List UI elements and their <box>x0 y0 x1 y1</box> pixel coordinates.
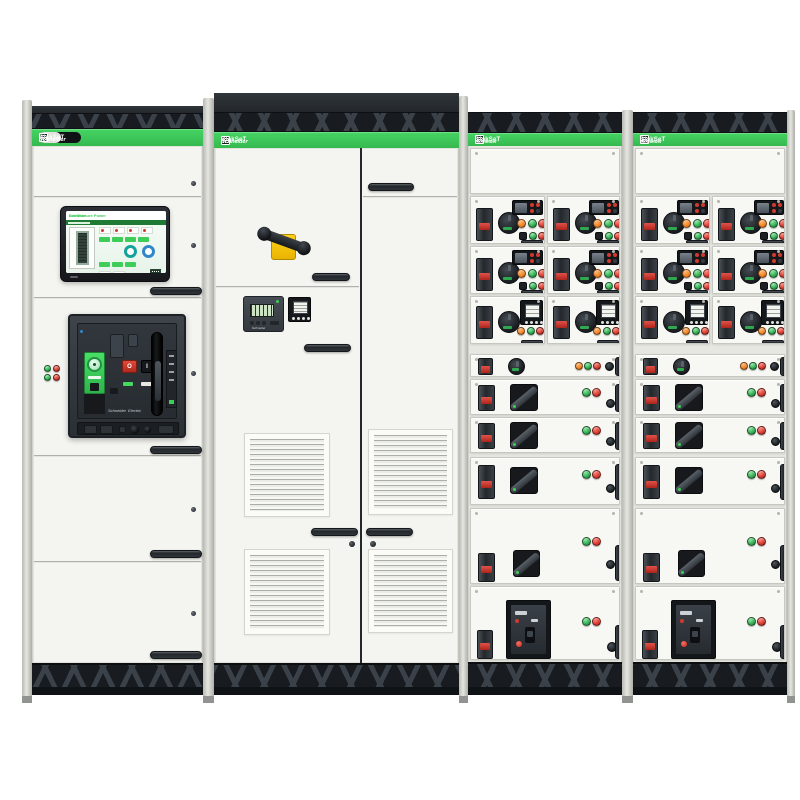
test-knob[interactable] <box>606 560 615 569</box>
pilot-light-green[interactable] <box>44 374 51 381</box>
reset-button[interactable] <box>682 219 691 228</box>
pilot-light-red[interactable] <box>538 232 545 240</box>
breaker-rotary-handle[interactable] <box>510 422 538 449</box>
air-circuit-breaker: O I SchneiderElectric <box>68 314 186 438</box>
drawer-grip[interactable] <box>597 290 619 294</box>
drawer-side-handle[interactable] <box>780 384 785 412</box>
motor-control-unit[interactable] <box>754 200 784 215</box>
test-knob[interactable] <box>605 362 614 371</box>
feeder-drawer <box>635 417 785 453</box>
start-button[interactable] <box>692 327 700 335</box>
hmi-button[interactable] <box>112 237 123 242</box>
pilot-light-green[interactable] <box>747 617 756 626</box>
hmi-button[interactable] <box>99 237 110 242</box>
ventilation-grille <box>244 549 330 635</box>
frame-post-right <box>787 110 795 703</box>
feeder-drawer <box>470 379 620 415</box>
meter-drawer <box>635 296 710 344</box>
mini-selector[interactable] <box>519 282 527 290</box>
hmi-button[interactable] <box>125 262 136 267</box>
stop-button[interactable] <box>538 269 545 278</box>
door-split <box>360 148 362 663</box>
hmi-button[interactable] <box>125 237 136 242</box>
door-handle[interactable] <box>150 287 202 295</box>
feeder-drawer <box>635 379 785 415</box>
pilot-light-red[interactable] <box>757 617 766 626</box>
pilot-light-green[interactable] <box>582 426 591 435</box>
ventilation-grille <box>244 433 330 517</box>
motor-drawer <box>712 246 785 294</box>
pilot-light-red[interactable] <box>757 537 766 546</box>
drawer-latch-handle[interactable] <box>641 208 658 241</box>
test-knob[interactable] <box>606 399 615 408</box>
pilot-light-green[interactable] <box>694 282 702 290</box>
indicator-window <box>110 334 124 358</box>
stop-button[interactable] <box>538 219 545 228</box>
feeder-drawer <box>470 417 620 453</box>
door-handle[interactable] <box>150 651 202 659</box>
hmi-brand-logo: Schneider <box>69 214 86 218</box>
reset-button[interactable] <box>517 269 526 278</box>
start-button[interactable] <box>768 327 776 335</box>
drawer-latch-handle[interactable] <box>478 385 495 411</box>
reset-button[interactable] <box>758 219 767 228</box>
door-handle[interactable] <box>366 528 413 536</box>
breaker-rotary-handle[interactable] <box>678 550 705 577</box>
mini-selector[interactable] <box>519 232 527 240</box>
drawer-latch-handle[interactable] <box>553 258 570 291</box>
feeder-drawer <box>470 457 620 505</box>
motor-drawer <box>547 196 620 244</box>
pilot-light-red[interactable] <box>53 374 60 381</box>
cabinet3-top-vent <box>633 112 787 133</box>
drawer-latch-handle[interactable] <box>643 553 660 582</box>
drawer-latch-handle[interactable] <box>476 306 493 339</box>
pilot-light-green[interactable] <box>770 232 778 240</box>
mini-selector[interactable] <box>595 282 603 290</box>
reset-button[interactable] <box>740 362 748 370</box>
drawer-latch-handle[interactable] <box>553 208 570 241</box>
mini-selector[interactable] <box>684 282 692 290</box>
pilot-light-green[interactable] <box>747 388 756 397</box>
motor-control-unit[interactable] <box>512 250 543 265</box>
multimeter[interactable] <box>288 297 311 322</box>
drawer-grip[interactable] <box>762 340 784 344</box>
drawer-grip[interactable] <box>521 290 543 294</box>
breaker-rotary-handle[interactable] <box>510 384 538 411</box>
hmi-button[interactable] <box>112 262 123 267</box>
drawer-side-handle[interactable] <box>780 625 785 659</box>
meter-enter-button[interactable] <box>270 321 279 325</box>
test-knob[interactable] <box>771 560 780 569</box>
cabinet3-base <box>633 662 787 695</box>
stop-button[interactable] <box>614 219 620 228</box>
trip-test-button[interactable] <box>681 641 687 647</box>
frame-post-1-2 <box>203 98 214 703</box>
alarm-tile[interactable] <box>113 227 125 234</box>
start-button[interactable] <box>604 219 613 228</box>
stop-button[interactable] <box>612 327 620 335</box>
pilot-light-green[interactable] <box>44 365 51 372</box>
drawer-latch-handle[interactable] <box>718 258 735 291</box>
drawer-latch-handle[interactable] <box>643 423 660 449</box>
hmi-button[interactable] <box>99 262 110 267</box>
meter-button[interactable] <box>256 321 260 325</box>
pilot-light-red[interactable] <box>779 282 785 290</box>
motor-control-unit[interactable] <box>754 250 784 265</box>
cabinet2-roof <box>214 93 459 113</box>
reset-button[interactable] <box>682 269 691 278</box>
drawer-side-handle[interactable] <box>615 422 620 450</box>
feeder-drawer <box>635 354 785 377</box>
trip-test-button[interactable] <box>516 641 522 647</box>
alarm-tile[interactable] <box>141 227 153 234</box>
frame-post-3-4 <box>622 110 633 703</box>
door-handle[interactable] <box>304 344 351 352</box>
molded-case-breaker[interactable] <box>671 600 716 659</box>
door-handle[interactable] <box>311 528 358 536</box>
door-lock[interactable] <box>191 371 196 376</box>
breaker-toggle[interactable] <box>690 627 700 643</box>
drawer-grip[interactable] <box>597 240 619 244</box>
breaker-toggle[interactable] <box>525 627 535 643</box>
trip-unit-dial[interactable] <box>87 357 102 372</box>
stop-button[interactable] <box>701 327 709 335</box>
drawer-side-handle[interactable] <box>780 357 785 376</box>
pilot-light-red[interactable] <box>592 388 601 397</box>
pilot-light-green[interactable] <box>747 426 756 435</box>
pilot-light-green[interactable] <box>529 282 537 290</box>
pilot-light-red[interactable] <box>53 365 60 372</box>
cabinet3-brand-band: BlokSeT Schneider Electric <box>468 133 622 146</box>
meter-button[interactable] <box>262 321 266 325</box>
hmi-button[interactable] <box>138 237 149 242</box>
start-button[interactable] <box>528 269 537 278</box>
drawer-grip[interactable] <box>686 290 708 294</box>
alarm-tile[interactable] <box>127 227 139 234</box>
rating-plate <box>166 350 177 408</box>
drawer-grip[interactable] <box>762 290 784 294</box>
pilot-light-red[interactable] <box>592 426 601 435</box>
pilot-light-green[interactable] <box>694 232 702 240</box>
drawer-side-handle[interactable] <box>615 384 620 412</box>
door-handle[interactable] <box>150 446 202 454</box>
blank-panel <box>635 148 785 194</box>
start-button[interactable] <box>527 327 535 335</box>
pilot-light-green[interactable] <box>582 388 591 397</box>
drawer-side-handle[interactable] <box>615 545 620 581</box>
cabinet3-top-vent <box>468 112 622 133</box>
door-lock[interactable] <box>191 507 196 512</box>
drawer-latch-handle[interactable] <box>643 385 660 411</box>
meter-brand: Schneider <box>252 326 266 330</box>
reset-button[interactable] <box>593 219 602 228</box>
power-meter[interactable]: Schneider <box>243 296 284 332</box>
cabinet1-top-vent <box>32 113 203 129</box>
racking-panel <box>77 422 179 435</box>
test-knob[interactable] <box>606 437 615 446</box>
start-button[interactable] <box>604 269 613 278</box>
motor-drawer <box>712 196 785 244</box>
drawer-latch-handle[interactable] <box>643 358 658 375</box>
hmi-screen[interactable]: EcoStruxure Power Schneider <box>66 211 166 273</box>
racking-socket[interactable] <box>130 425 139 434</box>
pilot-light-red[interactable] <box>757 388 766 397</box>
single-line-diagram <box>69 227 95 269</box>
pilot-light-red[interactable] <box>538 282 545 290</box>
gauge-blue <box>142 245 155 258</box>
pilot-light-green[interactable] <box>529 232 537 240</box>
drawer-latch-handle[interactable] <box>476 208 493 241</box>
pilot-light-red[interactable] <box>703 232 710 240</box>
feeder-drawer-large <box>635 508 785 584</box>
breaker-rotary-handle[interactable] <box>675 384 703 411</box>
drawer-grip[interactable] <box>521 240 543 244</box>
pilot-light-red[interactable] <box>757 426 766 435</box>
drawer-grip[interactable] <box>521 340 543 344</box>
start-button[interactable] <box>693 219 702 228</box>
drawer-side-handle[interactable] <box>615 464 620 500</box>
reset-button[interactable] <box>517 327 525 335</box>
test-knob[interactable] <box>771 484 780 493</box>
pilot-light-green[interactable] <box>582 537 591 546</box>
breaker-rotary-handle[interactable] <box>675 422 703 449</box>
hmi-header: EcoStruxure Power Schneider <box>66 211 166 220</box>
start-button[interactable] <box>528 219 537 228</box>
cabinet2-top-vent <box>214 112 459 132</box>
pilot-light-red[interactable] <box>592 470 601 479</box>
hmi-chin <box>66 273 166 280</box>
breaker-face: O I SchneiderElectric <box>77 323 177 419</box>
drawer-latch-handle[interactable] <box>478 465 495 499</box>
door-lock[interactable] <box>349 541 355 547</box>
test-knob[interactable] <box>770 362 779 371</box>
reset-button[interactable] <box>758 269 767 278</box>
drawer-latch-handle[interactable] <box>642 630 658 659</box>
start-button[interactable] <box>603 327 611 335</box>
drawer-latch-handle[interactable] <box>477 630 493 659</box>
rotary-switch[interactable] <box>673 358 690 375</box>
pilot-light-green[interactable] <box>605 232 613 240</box>
test-knob[interactable] <box>606 484 615 493</box>
meter-drawer <box>470 296 545 344</box>
motor-drawer <box>635 246 710 294</box>
drawer-side-handle[interactable] <box>780 545 785 581</box>
meter-lcd-display <box>250 304 274 317</box>
meter-drawer <box>547 296 620 344</box>
breaker-rotary-handle[interactable] <box>513 550 540 577</box>
feeder-drawer <box>470 354 620 377</box>
door-handle[interactable] <box>312 273 350 281</box>
reset-button[interactable] <box>758 327 766 335</box>
drawer-latch-handle[interactable] <box>553 306 570 339</box>
rotary-switch[interactable] <box>508 358 525 375</box>
push-off-button[interactable]: O <box>122 360 137 373</box>
pilot-light-red[interactable] <box>703 282 710 290</box>
blank-panel <box>470 148 620 194</box>
pilot-light-green[interactable] <box>749 362 757 370</box>
cabinet3-brand-band: BlokSeT Schneider Electric <box>633 133 787 146</box>
frame-post-2-3 <box>459 96 468 703</box>
drawer-side-handle[interactable] <box>780 422 785 450</box>
breaker-rotary-handle[interactable] <box>510 467 538 494</box>
start-button[interactable] <box>769 269 778 278</box>
drawer-grip[interactable] <box>762 240 784 244</box>
reset-button[interactable] <box>682 327 690 335</box>
cabinet-1: BlokSeT Schneider Electric EcoStruxure P… <box>32 106 203 696</box>
breaker-rotary-handle[interactable] <box>675 467 703 494</box>
cabinet2-brand-band: BlokSeT Schneider Electric <box>214 132 459 148</box>
stop-button[interactable] <box>614 269 620 278</box>
drawer-side-handle[interactable] <box>615 625 620 659</box>
reset-button[interactable] <box>593 327 601 335</box>
drawer-grip[interactable] <box>686 340 708 344</box>
mini-selector[interactable] <box>684 232 692 240</box>
mini-selector[interactable] <box>595 232 603 240</box>
drawer-meter[interactable] <box>520 300 543 325</box>
pilot-light-red[interactable] <box>758 362 766 370</box>
motor-drawer <box>470 196 545 244</box>
molded-case-breaker[interactable] <box>506 600 551 659</box>
pilot-light-red[interactable] <box>757 470 766 479</box>
motor-control-unit[interactable] <box>677 250 708 265</box>
switchboard: BlokSeT Schneider Electric EcoStruxure P… <box>0 0 800 800</box>
pilot-light-red[interactable] <box>592 617 601 626</box>
stop-button[interactable] <box>703 219 710 228</box>
micrologic-control-unit[interactable] <box>84 352 105 394</box>
motor-drawer <box>547 246 620 294</box>
drawer-latch-handle[interactable] <box>718 208 735 241</box>
start-button[interactable] <box>769 219 778 228</box>
door-handle[interactable] <box>150 550 202 558</box>
drawer-meter[interactable] <box>761 300 784 325</box>
stop-button[interactable] <box>703 269 710 278</box>
stop-button[interactable] <box>779 269 785 278</box>
pilot-light-green[interactable] <box>582 617 591 626</box>
drawer-side-handle[interactable] <box>615 357 620 376</box>
drawer-latch-handle[interactable] <box>641 306 658 339</box>
drawer-latch-handle[interactable] <box>478 553 495 582</box>
drawer-latch-handle[interactable] <box>478 423 495 449</box>
pilot-light-red[interactable] <box>614 282 620 290</box>
motor-control-unit[interactable] <box>512 200 543 215</box>
drawer-latch-handle[interactable] <box>478 358 493 375</box>
door-lock[interactable] <box>191 611 196 616</box>
hmi-content <box>66 225 166 273</box>
motor-control-unit[interactable] <box>589 250 619 265</box>
alarm-tile[interactable] <box>99 227 111 234</box>
motor-control-unit[interactable] <box>589 200 619 215</box>
frame-post-left <box>22 100 32 703</box>
drawer-latch-handle[interactable] <box>718 306 735 339</box>
ventilation-grille <box>368 549 453 633</box>
cabinet1-brand-band: BlokSeT Schneider Electric <box>32 129 203 146</box>
drawer-meter[interactable] <box>685 300 708 325</box>
cabinet-4: BlokSeT Schneider Electric <box>633 112 787 695</box>
ventilation-grille <box>368 429 453 515</box>
start-button[interactable] <box>693 269 702 278</box>
door-lock[interactable] <box>191 243 196 248</box>
indicator-window <box>128 334 138 347</box>
mini-selector[interactable] <box>760 232 768 240</box>
drawer-latch-handle[interactable] <box>643 465 660 499</box>
gauge-teal <box>124 245 137 258</box>
reset-button[interactable] <box>517 219 526 228</box>
meter-status-led <box>276 300 279 303</box>
reset-button[interactable] <box>593 269 602 278</box>
feeder-drawer-large <box>470 508 620 584</box>
charging-handle-slot[interactable] <box>151 332 163 416</box>
cabinet2-base <box>214 663 459 695</box>
pilot-light-green[interactable] <box>582 470 591 479</box>
drawer-grip[interactable] <box>597 340 619 344</box>
door-lock[interactable] <box>370 541 376 547</box>
cabinet-3: BlokSeT Schneider Electric <box>468 112 622 695</box>
cabinet1-base <box>32 663 203 695</box>
stop-button[interactable] <box>777 327 785 335</box>
meter-button[interactable] <box>250 321 254 325</box>
drawer-side-handle[interactable] <box>780 464 785 500</box>
stop-button[interactable] <box>536 327 544 335</box>
drawer-meter[interactable] <box>596 300 619 325</box>
drawer-latch-handle[interactable] <box>476 258 493 291</box>
charged-indicator <box>123 382 133 386</box>
position-indicator <box>144 426 151 433</box>
hmi-touchscreen[interactable]: EcoStruxure Power Schneider <box>60 206 170 282</box>
multimeter-display <box>293 301 308 314</box>
feeder-drawer <box>635 457 785 505</box>
pilot-light-red[interactable] <box>592 537 601 546</box>
test-knob[interactable] <box>771 399 780 408</box>
cabinet3-base <box>468 662 622 695</box>
drawer-latch-handle[interactable] <box>641 258 658 291</box>
pilot-light-green[interactable] <box>747 537 756 546</box>
pilot-light-green[interactable] <box>770 282 778 290</box>
meter-drawer <box>712 296 785 344</box>
pilot-light-red[interactable] <box>614 232 620 240</box>
door-lock[interactable] <box>191 181 196 186</box>
reset-button[interactable] <box>575 362 583 370</box>
pilot-light-red[interactable] <box>779 232 785 240</box>
breaker-brand-logo: SchneiderElectric <box>108 408 141 413</box>
mccb-section <box>470 586 620 660</box>
pilot-light-red[interactable] <box>593 362 601 370</box>
motor-drawer <box>635 196 710 244</box>
drawer-grip[interactable] <box>686 240 708 244</box>
motor-drawer <box>470 246 545 294</box>
mccb-section <box>635 586 785 660</box>
mini-selector[interactable] <box>760 282 768 290</box>
pilot-light-green[interactable] <box>584 362 592 370</box>
test-knob[interactable] <box>771 437 780 446</box>
pilot-light-green[interactable] <box>605 282 613 290</box>
stop-button[interactable] <box>779 219 785 228</box>
motor-control-unit[interactable] <box>677 200 708 215</box>
door-handle[interactable] <box>368 183 414 191</box>
pilot-light-green[interactable] <box>747 470 756 479</box>
cabinet-2: BlokSeT Schneider Electric <box>214 93 459 695</box>
